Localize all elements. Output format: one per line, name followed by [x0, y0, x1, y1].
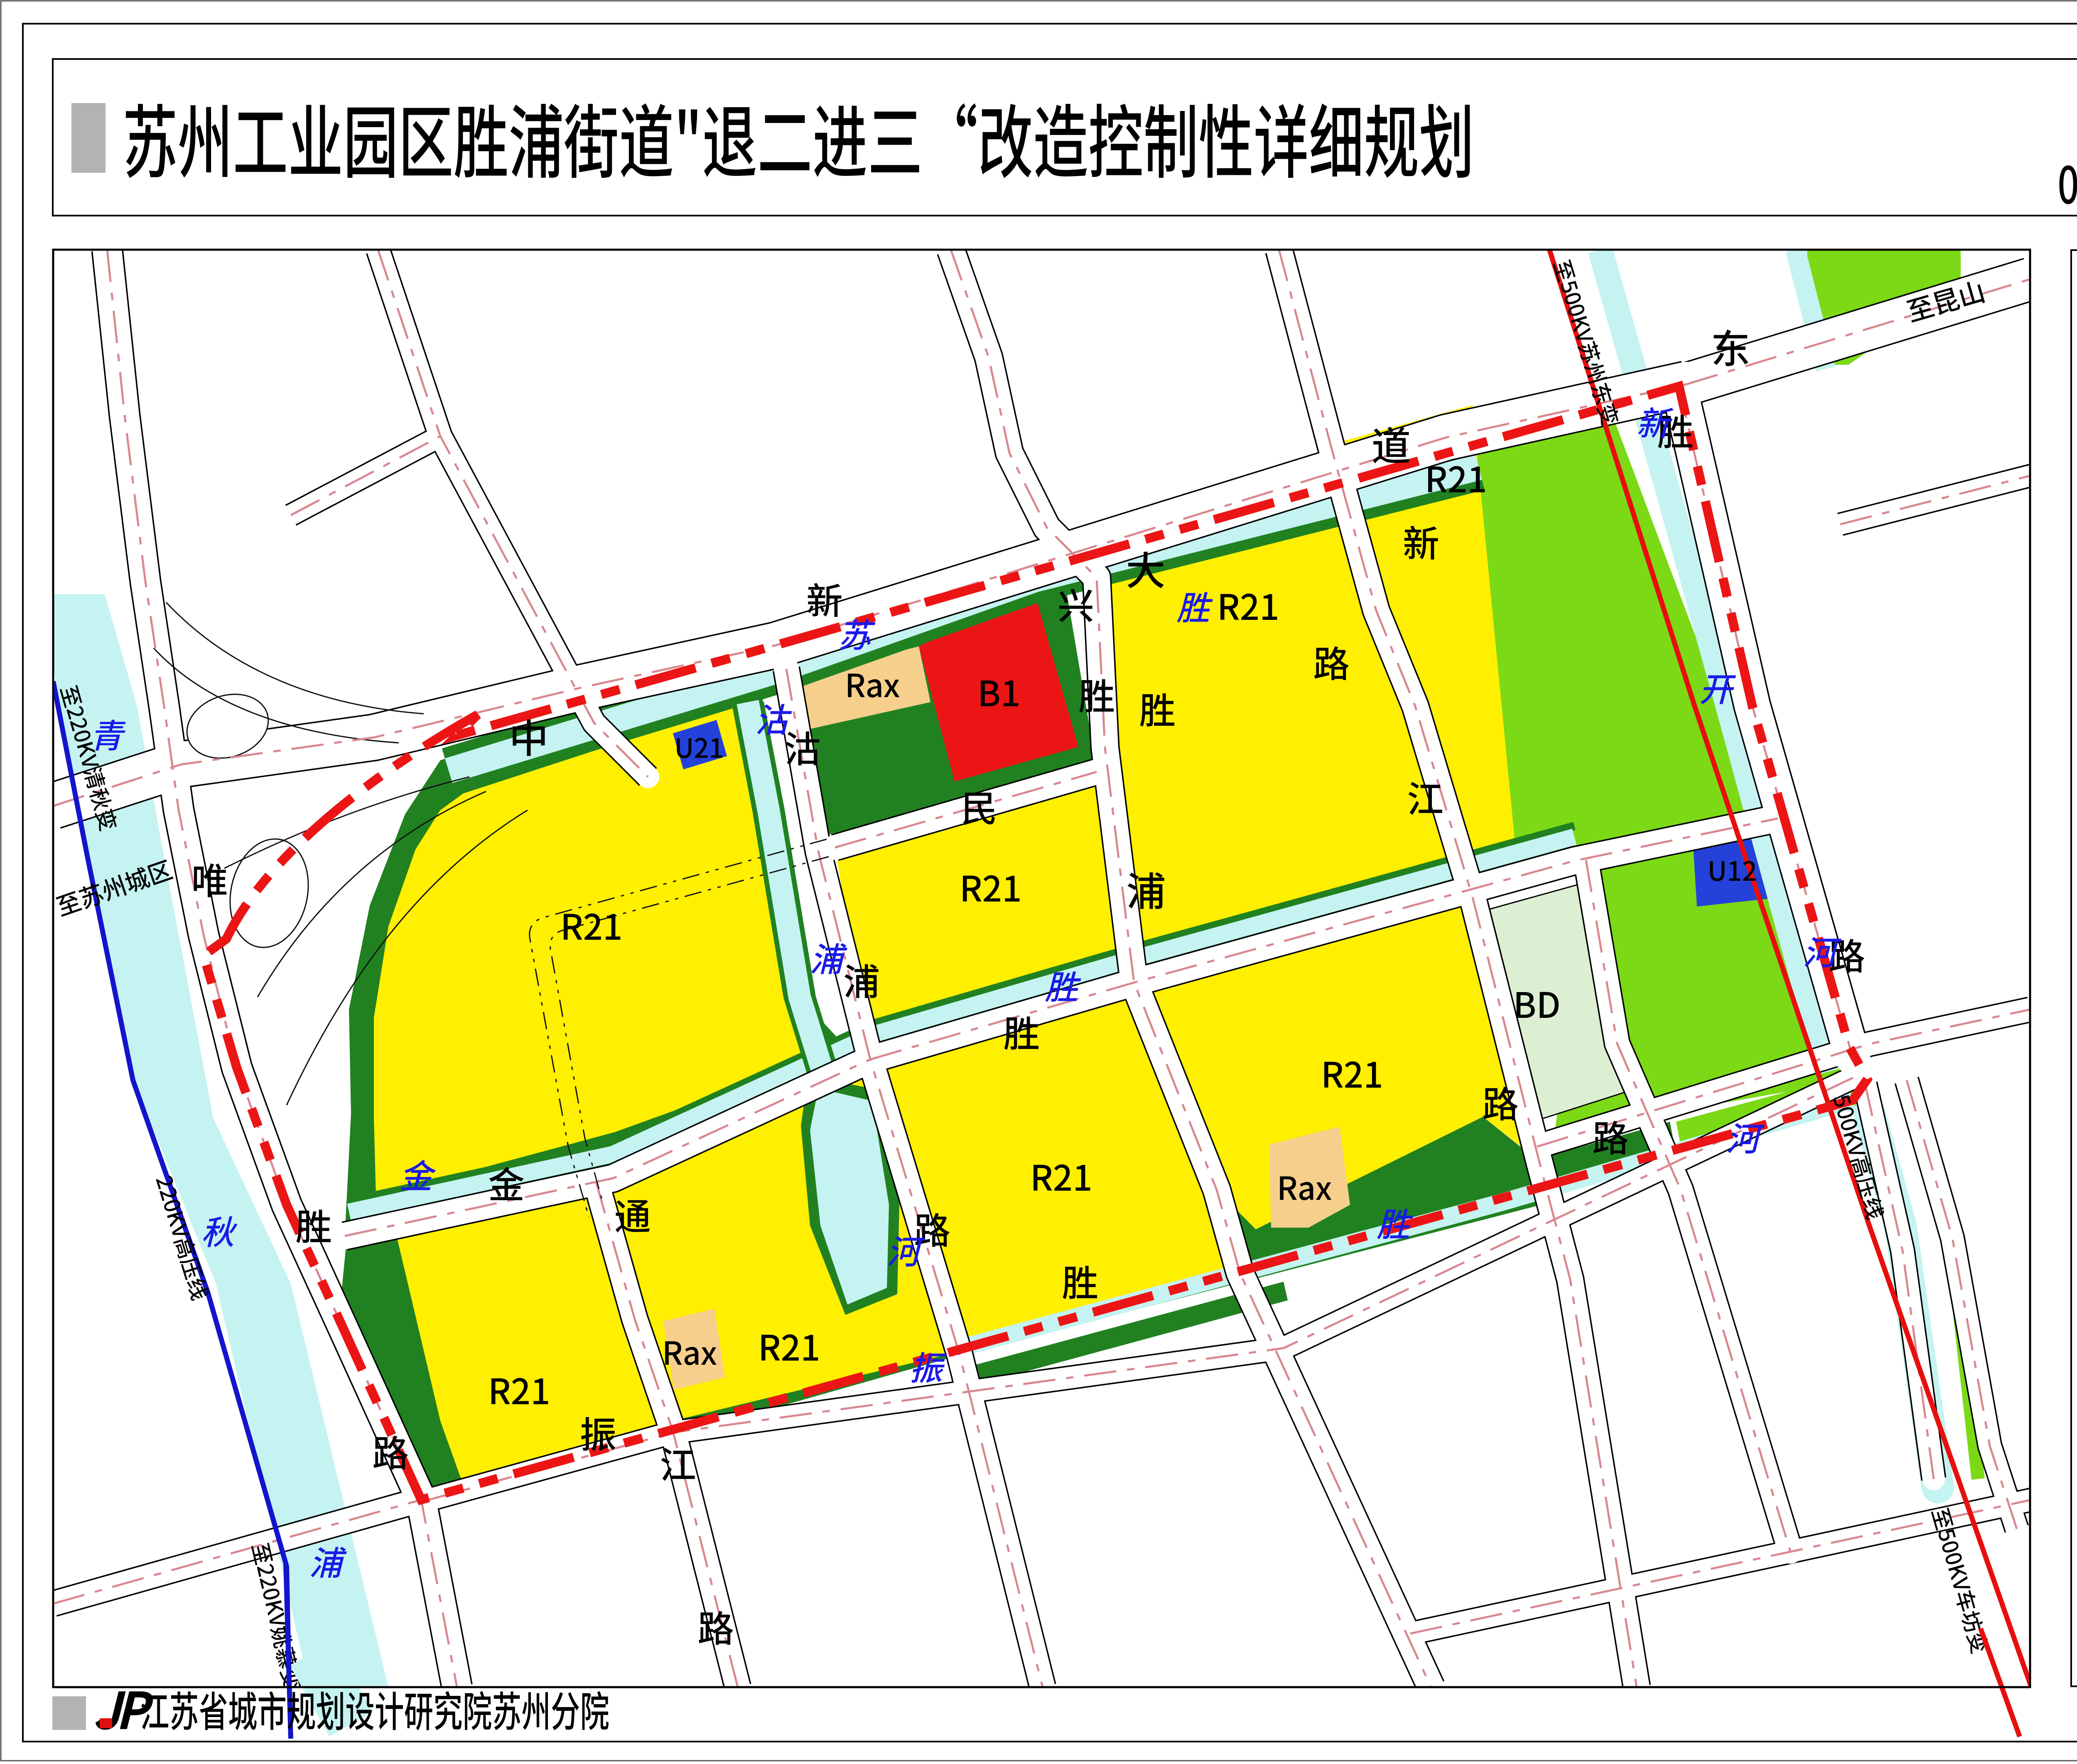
svg-text:道: 道 — [1371, 415, 1411, 472]
svg-text:R21: R21 — [560, 900, 623, 950]
svg-text:R21: R21 — [1321, 1048, 1383, 1098]
svg-text:Rax: Rax — [845, 661, 900, 706]
svg-text:U12: U12 — [1707, 850, 1757, 889]
svg-text:浦: 浦 — [1126, 860, 1166, 917]
svg-text:R21: R21 — [1030, 1151, 1093, 1201]
svg-text:05 土地利用规划图: 05 土地利用规划图 — [2057, 145, 2077, 219]
svg-text:R21: R21 — [960, 862, 1022, 912]
svg-text:路: 路 — [1313, 635, 1350, 688]
svg-text:BD: BD — [1513, 978, 1561, 1028]
svg-text:新: 新 — [806, 572, 843, 625]
svg-text:大: 大 — [1126, 540, 1165, 597]
svg-text:路: 路 — [372, 1425, 409, 1477]
svg-text:R21: R21 — [1217, 580, 1279, 630]
svg-text:胜: 胜 — [295, 1198, 332, 1251]
svg-text:U21: U21 — [674, 727, 724, 766]
svg-text:路: 路 — [1482, 1076, 1519, 1128]
svg-text:江苏省城市规划设计研究院苏州分院: 江苏省城市规划设计研究院苏州分院 — [140, 1678, 609, 1739]
svg-text:兴: 兴 — [1058, 577, 1094, 630]
svg-text:Rax: Rax — [1277, 1163, 1332, 1209]
svg-text:东: 东 — [1711, 318, 1750, 375]
svg-text:胜: 胜 — [1062, 1254, 1098, 1307]
svg-text:振: 振 — [580, 1406, 616, 1459]
svg-text:Rax: Rax — [662, 1328, 717, 1374]
svg-text:胜: 胜 — [1139, 682, 1176, 735]
svg-text:B1: B1 — [977, 666, 1021, 717]
svg-text:胜: 胜 — [1003, 1005, 1040, 1058]
svg-text:R21: R21 — [758, 1321, 820, 1371]
svg-text:金: 金 — [488, 1156, 525, 1209]
svg-text:中: 中 — [509, 708, 548, 764]
svg-text:路: 路 — [1592, 1110, 1629, 1162]
svg-text:通: 通 — [614, 1188, 651, 1241]
svg-text:沽: 沽 — [784, 720, 821, 773]
svg-text:浦: 浦 — [843, 953, 880, 1006]
svg-text:唯: 唯 — [191, 852, 228, 905]
svg-text:R21: R21 — [488, 1364, 550, 1415]
svg-text:R21: R21 — [1425, 452, 1487, 503]
svg-text:胜: 胜 — [1078, 668, 1115, 720]
svg-text:江: 江 — [660, 1436, 696, 1489]
svg-text:江: 江 — [1407, 770, 1444, 823]
svg-text:苏州工业园区胜浦街道"退二进三“改造控制性详细规划: 苏州工业园区胜浦街道"退二进三“改造控制性详细规划 — [123, 79, 1474, 194]
svg-text:新: 新 — [1403, 515, 1439, 568]
svg-text:民: 民 — [961, 780, 997, 833]
svg-text:路: 路 — [697, 1600, 734, 1653]
